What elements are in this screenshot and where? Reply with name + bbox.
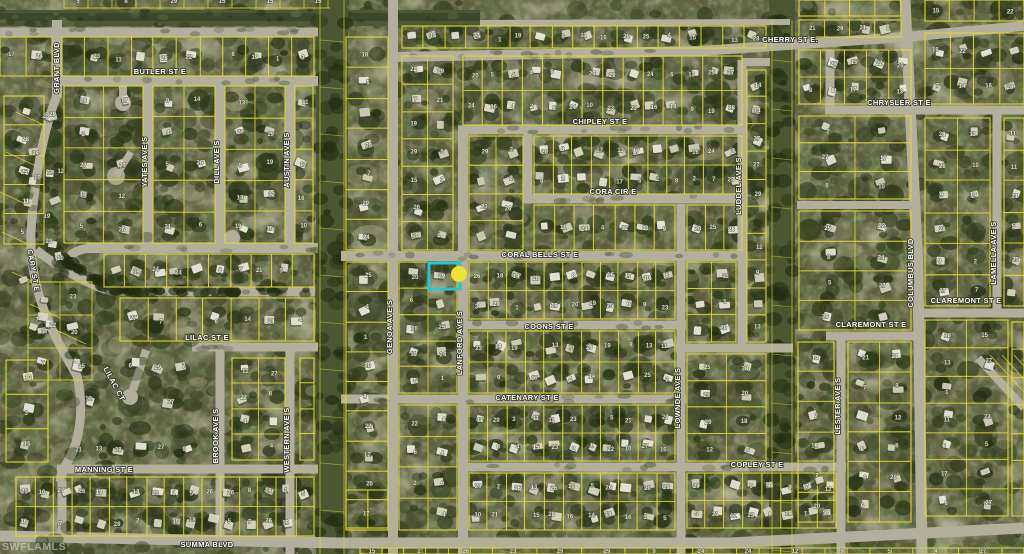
svg-text:28: 28 <box>753 36 760 42</box>
svg-text:LILAC ST E: LILAC ST E <box>185 333 229 342</box>
svg-text:27: 27 <box>119 163 126 169</box>
svg-text:28: 28 <box>728 105 735 111</box>
svg-text:15: 15 <box>533 445 540 451</box>
svg-text:19: 19 <box>708 109 715 115</box>
svg-text:10: 10 <box>475 513 482 519</box>
svg-text:28: 28 <box>939 227 946 233</box>
svg-text:14: 14 <box>812 355 819 361</box>
svg-text:14: 14 <box>670 104 677 110</box>
svg-text:27: 27 <box>130 316 137 322</box>
svg-text:26: 26 <box>206 489 213 495</box>
svg-text:16: 16 <box>430 34 437 40</box>
svg-text:19: 19 <box>589 301 596 307</box>
svg-text:19: 19 <box>251 55 258 61</box>
svg-text:18: 18 <box>362 53 369 59</box>
svg-text:26: 26 <box>463 549 470 554</box>
svg-text:17: 17 <box>363 512 370 518</box>
svg-text:21: 21 <box>862 356 869 362</box>
svg-text:29: 29 <box>557 549 564 554</box>
svg-text:21: 21 <box>491 512 498 518</box>
svg-text:11: 11 <box>661 344 668 350</box>
svg-text:24: 24 <box>569 105 576 111</box>
svg-text:20: 20 <box>541 150 548 156</box>
svg-text:23: 23 <box>607 106 614 112</box>
svg-text:13: 13 <box>754 325 761 331</box>
svg-text:10: 10 <box>300 223 307 229</box>
svg-text:11: 11 <box>410 352 417 358</box>
svg-text:11: 11 <box>1010 132 1017 138</box>
svg-text:CLAREMONT ST E: CLAREMONT ST E <box>836 320 907 329</box>
svg-text:24: 24 <box>698 549 705 554</box>
svg-text:15: 15 <box>267 0 274 5</box>
svg-text:28: 28 <box>114 522 121 528</box>
svg-text:27: 27 <box>158 445 165 451</box>
svg-text:12: 12 <box>268 192 275 198</box>
svg-text:29: 29 <box>171 0 178 5</box>
svg-text:26: 26 <box>413 205 420 211</box>
svg-text:25: 25 <box>606 304 613 310</box>
svg-text:27: 27 <box>271 372 278 378</box>
svg-text:11: 11 <box>560 225 567 231</box>
svg-text:13: 13 <box>731 38 738 44</box>
svg-text:21: 21 <box>712 512 719 518</box>
svg-text:19: 19 <box>267 160 274 166</box>
svg-text:19: 19 <box>511 346 518 352</box>
svg-text:22: 22 <box>410 67 417 73</box>
svg-text:27: 27 <box>168 400 175 406</box>
svg-text:24: 24 <box>32 151 39 157</box>
svg-text:22: 22 <box>411 421 418 427</box>
svg-text:17: 17 <box>8 52 15 58</box>
svg-text:14: 14 <box>244 317 251 323</box>
svg-text:11: 11 <box>548 418 555 424</box>
svg-text:14: 14 <box>755 83 762 89</box>
svg-text:27: 27 <box>662 415 669 421</box>
svg-text:21: 21 <box>164 224 171 230</box>
svg-text:11: 11 <box>642 226 649 232</box>
svg-text:14: 14 <box>754 109 761 115</box>
svg-text:23: 23 <box>481 204 488 210</box>
svg-text:10: 10 <box>568 484 575 490</box>
svg-text:17: 17 <box>880 156 887 162</box>
svg-text:26: 26 <box>550 486 557 492</box>
svg-text:27: 27 <box>80 163 87 169</box>
svg-text:16: 16 <box>932 48 939 54</box>
svg-text:WESTERN AVE S: WESTERN AVE S <box>282 407 291 472</box>
svg-text:13: 13 <box>133 490 140 496</box>
svg-text:23: 23 <box>630 106 637 112</box>
svg-text:19: 19 <box>96 490 103 496</box>
svg-text:17: 17 <box>596 148 603 154</box>
svg-text:24: 24 <box>175 270 182 276</box>
svg-text:12: 12 <box>118 194 125 200</box>
svg-text:22: 22 <box>984 415 991 421</box>
svg-text:26: 26 <box>606 486 613 492</box>
svg-text:14: 14 <box>513 274 520 280</box>
svg-text:19: 19 <box>235 224 242 230</box>
svg-text:13: 13 <box>944 361 951 367</box>
svg-text:24: 24 <box>647 72 654 78</box>
svg-text:11: 11 <box>115 58 122 64</box>
svg-text:19: 19 <box>811 444 818 450</box>
svg-text:14: 14 <box>588 374 595 380</box>
svg-text:29: 29 <box>693 484 700 490</box>
svg-text:13: 13 <box>688 72 695 78</box>
svg-text:24: 24 <box>708 149 715 155</box>
svg-text:12: 12 <box>756 245 763 251</box>
svg-text:19: 19 <box>604 344 611 350</box>
svg-text:26: 26 <box>80 99 87 105</box>
svg-text:11: 11 <box>47 171 54 177</box>
svg-text:25: 25 <box>644 373 651 379</box>
svg-text:20: 20 <box>364 364 371 370</box>
svg-text:15: 15 <box>533 513 540 519</box>
svg-text:COONS ST E: COONS ST E <box>524 322 573 331</box>
svg-text:11: 11 <box>533 416 540 422</box>
svg-text:11: 11 <box>1011 165 1018 171</box>
svg-text:20: 20 <box>475 484 482 490</box>
svg-text:16: 16 <box>651 105 658 111</box>
svg-text:18: 18 <box>189 518 196 524</box>
svg-text:26: 26 <box>118 227 125 233</box>
svg-text:19: 19 <box>133 269 140 275</box>
svg-text:10: 10 <box>878 184 885 190</box>
svg-text:23: 23 <box>70 294 77 300</box>
svg-text:23: 23 <box>510 549 517 554</box>
svg-text:20: 20 <box>813 504 820 510</box>
svg-text:27: 27 <box>237 130 244 136</box>
svg-text:LAMELLA AVE S: LAMELLA AVE S <box>989 221 998 284</box>
svg-text:26: 26 <box>474 274 481 280</box>
svg-text:GENOA AVE S: GENOA AVE S <box>385 300 394 354</box>
svg-text:CHRYSLER ST E: CHRYSLER ST E <box>867 98 931 107</box>
svg-text:17: 17 <box>941 472 948 478</box>
svg-text:26: 26 <box>265 519 272 525</box>
svg-text:12: 12 <box>895 416 902 422</box>
svg-text:LANFORD AVE S: LANFORD AVE S <box>455 311 464 375</box>
svg-text:23: 23 <box>475 346 482 352</box>
svg-text:22: 22 <box>959 49 966 55</box>
svg-text:27: 27 <box>473 34 480 40</box>
svg-text:10: 10 <box>625 446 632 452</box>
svg-text:25: 25 <box>643 34 650 40</box>
svg-text:26: 26 <box>227 491 234 497</box>
svg-text:10: 10 <box>586 103 593 109</box>
svg-text:DILL AVE S: DILL AVE S <box>212 140 221 183</box>
svg-text:SWFLAMLS: SWFLAMLS <box>2 541 66 553</box>
svg-text:19: 19 <box>785 512 792 518</box>
svg-text:17: 17 <box>41 329 48 335</box>
svg-text:12: 12 <box>242 369 249 375</box>
svg-text:COLUMBUS BLVD: COLUMBUS BLVD <box>906 238 915 307</box>
svg-text:10: 10 <box>972 163 979 169</box>
svg-text:12: 12 <box>57 169 64 175</box>
svg-text:27: 27 <box>879 284 886 290</box>
svg-text:20: 20 <box>472 74 479 80</box>
svg-text:13: 13 <box>552 343 559 349</box>
svg-text:10: 10 <box>411 327 418 333</box>
svg-text:16: 16 <box>985 84 992 90</box>
svg-text:LOWNDE AVE S: LOWNDE AVE S <box>673 368 682 429</box>
svg-text:12: 12 <box>621 226 628 232</box>
svg-text:24: 24 <box>152 267 159 273</box>
svg-text:BUTLER ST E: BUTLER ST E <box>134 67 186 76</box>
svg-text:29: 29 <box>705 420 712 426</box>
svg-text:25: 25 <box>704 365 711 371</box>
svg-text:29: 29 <box>437 69 444 75</box>
svg-text:21: 21 <box>809 26 816 32</box>
svg-text:12: 12 <box>300 162 307 168</box>
svg-text:28: 28 <box>742 367 749 373</box>
svg-text:10: 10 <box>39 490 46 496</box>
svg-text:22: 22 <box>1007 9 1014 15</box>
svg-text:21: 21 <box>256 268 263 274</box>
svg-text:17: 17 <box>822 512 829 518</box>
svg-text:15: 15 <box>267 226 274 232</box>
svg-text:26: 26 <box>589 71 596 77</box>
svg-text:24: 24 <box>581 227 588 233</box>
svg-text:15: 15 <box>411 178 418 184</box>
svg-text:24: 24 <box>268 319 275 325</box>
svg-text:16: 16 <box>607 273 614 279</box>
svg-text:25: 25 <box>710 225 717 231</box>
svg-text:16: 16 <box>20 519 27 525</box>
svg-text:20: 20 <box>644 486 651 492</box>
svg-text:17: 17 <box>625 274 632 280</box>
svg-text:LUDDEL AVE S: LUDDEL AVE S <box>734 157 743 215</box>
svg-text:11: 11 <box>730 514 737 520</box>
svg-text:29: 29 <box>837 26 844 32</box>
svg-text:27: 27 <box>939 289 946 295</box>
svg-text:15: 15 <box>369 549 376 554</box>
svg-text:23: 23 <box>703 393 710 399</box>
svg-text:20: 20 <box>742 391 749 397</box>
svg-text:22: 22 <box>878 223 885 229</box>
svg-text:27: 27 <box>985 359 992 365</box>
svg-text:28: 28 <box>728 227 735 233</box>
svg-text:16: 16 <box>490 104 497 110</box>
svg-text:28: 28 <box>897 64 904 70</box>
svg-text:12: 12 <box>364 453 371 459</box>
svg-text:15: 15 <box>933 9 940 15</box>
svg-text:29: 29 <box>411 150 418 156</box>
svg-text:21: 21 <box>437 98 444 104</box>
svg-text:20: 20 <box>71 330 78 336</box>
svg-text:27: 27 <box>822 155 829 161</box>
svg-text:27: 27 <box>753 162 760 168</box>
svg-text:CATENARY ST E: CATENARY ST E <box>495 393 558 402</box>
svg-text:23: 23 <box>46 239 53 245</box>
svg-text:16: 16 <box>514 486 521 492</box>
svg-text:22: 22 <box>186 55 193 61</box>
svg-text:25: 25 <box>21 170 28 176</box>
svg-text:29: 29 <box>609 73 616 79</box>
svg-text:BROOK AVE S: BROOK AVE S <box>211 409 220 464</box>
svg-text:15: 15 <box>172 520 179 526</box>
svg-text:22: 22 <box>365 424 372 430</box>
svg-text:17: 17 <box>121 98 128 104</box>
svg-text:29: 29 <box>663 485 670 491</box>
svg-text:16: 16 <box>692 150 699 156</box>
svg-text:22: 22 <box>240 395 247 401</box>
svg-text:15: 15 <box>219 0 226 5</box>
svg-text:CHERRY ST E.: CHERRY ST E. <box>762 35 818 44</box>
svg-text:29: 29 <box>493 302 500 308</box>
svg-text:17: 17 <box>531 376 538 382</box>
svg-text:19: 19 <box>515 34 522 40</box>
svg-text:25: 25 <box>439 325 446 331</box>
svg-text:SUMMA BLVD: SUMMA BLVD <box>181 540 234 549</box>
svg-text:27: 27 <box>58 488 65 494</box>
svg-text:10: 10 <box>57 256 64 262</box>
svg-text:18: 18 <box>497 274 504 280</box>
svg-text:23: 23 <box>93 54 100 60</box>
svg-text:12: 12 <box>792 549 799 554</box>
svg-text:24: 24 <box>440 353 447 359</box>
svg-text:13: 13 <box>531 485 538 491</box>
svg-text:23: 23 <box>662 306 669 312</box>
svg-text:19: 19 <box>410 122 417 128</box>
svg-text:20: 20 <box>412 275 419 281</box>
svg-text:27: 27 <box>754 136 761 142</box>
svg-text:23: 23 <box>570 417 577 423</box>
svg-text:14: 14 <box>959 84 966 90</box>
svg-text:17: 17 <box>616 180 623 186</box>
svg-text:25: 25 <box>365 273 372 279</box>
svg-text:16: 16 <box>625 515 632 521</box>
svg-text:21: 21 <box>892 354 899 360</box>
svg-text:10: 10 <box>970 193 977 199</box>
svg-text:13: 13 <box>238 101 245 107</box>
svg-text:17: 17 <box>633 149 640 155</box>
svg-text:17: 17 <box>850 88 857 94</box>
svg-text:19: 19 <box>282 520 289 526</box>
svg-text:10: 10 <box>944 334 951 340</box>
svg-text:29: 29 <box>438 274 445 280</box>
svg-text:13: 13 <box>237 195 244 201</box>
svg-text:15: 15 <box>689 35 696 41</box>
svg-text:26: 26 <box>197 161 204 167</box>
svg-text:27: 27 <box>830 62 837 68</box>
svg-text:CLAREMONT ST E: CLAREMONT ST E <box>931 296 1002 305</box>
svg-text:GRANT BLVD: GRANT BLVD <box>52 42 61 94</box>
svg-text:29: 29 <box>755 192 762 198</box>
svg-text:15: 15 <box>24 442 31 448</box>
svg-text:29: 29 <box>604 549 611 554</box>
svg-text:19: 19 <box>412 233 419 239</box>
svg-text:16: 16 <box>567 514 574 520</box>
svg-text:11: 11 <box>302 100 309 106</box>
svg-text:27: 27 <box>727 70 734 76</box>
svg-text:27: 27 <box>642 444 649 450</box>
svg-text:25: 25 <box>1012 258 1019 264</box>
svg-text:12: 12 <box>85 397 92 403</box>
svg-text:11: 11 <box>722 274 729 280</box>
svg-text:28: 28 <box>939 164 946 170</box>
svg-text:14: 14 <box>588 513 595 519</box>
svg-text:27: 27 <box>980 549 987 554</box>
svg-text:26: 26 <box>505 206 512 212</box>
svg-text:20: 20 <box>623 34 630 40</box>
svg-text:LESTER AVE S: LESTER AVE S <box>833 378 842 435</box>
svg-text:29: 29 <box>49 112 56 118</box>
svg-text:29: 29 <box>154 365 161 371</box>
svg-text:24: 24 <box>878 255 885 261</box>
svg-text:19: 19 <box>605 512 612 518</box>
svg-text:24: 24 <box>745 549 752 554</box>
svg-text:23: 23 <box>552 445 559 451</box>
svg-text:12: 12 <box>706 447 713 453</box>
svg-text:21: 21 <box>859 25 866 31</box>
svg-text:28: 28 <box>115 448 122 454</box>
svg-text:18: 18 <box>265 488 272 494</box>
svg-text:13: 13 <box>96 447 103 453</box>
svg-text:20: 20 <box>720 326 727 332</box>
svg-text:22: 22 <box>876 61 883 67</box>
svg-text:YATES AVE S: YATES AVE S <box>140 137 149 188</box>
svg-text:25: 25 <box>708 70 715 76</box>
svg-text:19: 19 <box>495 345 502 351</box>
svg-text:16: 16 <box>80 193 87 199</box>
svg-text:29: 29 <box>482 149 489 155</box>
svg-text:10: 10 <box>34 176 41 182</box>
svg-text:15: 15 <box>981 333 988 339</box>
svg-text:24: 24 <box>36 54 43 60</box>
svg-text:19: 19 <box>44 214 51 220</box>
svg-text:13: 13 <box>646 343 653 349</box>
svg-text:13: 13 <box>896 90 903 96</box>
svg-text:29: 29 <box>267 132 274 138</box>
svg-text:28: 28 <box>532 276 539 282</box>
svg-text:15: 15 <box>78 364 85 370</box>
svg-text:18: 18 <box>741 419 748 425</box>
svg-text:22: 22 <box>607 447 614 453</box>
svg-text:19: 19 <box>551 304 558 310</box>
svg-text:10: 10 <box>643 276 650 282</box>
svg-text:28: 28 <box>22 137 29 143</box>
svg-text:23: 23 <box>748 513 755 519</box>
svg-text:29: 29 <box>493 418 500 424</box>
svg-text:MANNING ST E: MANNING ST E <box>75 465 133 474</box>
svg-text:CHIPLEY ST E: CHIPLEY ST E <box>573 117 628 126</box>
svg-text:25: 25 <box>824 226 831 232</box>
svg-text:11: 11 <box>580 33 587 39</box>
svg-text:11: 11 <box>970 132 977 138</box>
svg-text:28: 28 <box>548 512 555 518</box>
svg-text:11: 11 <box>944 417 951 423</box>
svg-text:21: 21 <box>625 419 632 425</box>
svg-text:10: 10 <box>600 36 607 42</box>
svg-text:CORA CIR E: CORA CIR E <box>590 187 637 196</box>
svg-text:CORAL BELLS ST E: CORAL BELLS ST E <box>502 250 579 259</box>
svg-text:25: 25 <box>21 490 28 496</box>
svg-text:26: 26 <box>586 345 593 351</box>
svg-text:20: 20 <box>152 491 159 497</box>
svg-text:28: 28 <box>161 56 168 62</box>
svg-text:COPLEY ST E: COPLEY ST E <box>731 460 784 469</box>
svg-text:29: 29 <box>362 201 369 207</box>
svg-text:28: 28 <box>939 132 946 138</box>
svg-text:26: 26 <box>79 489 86 495</box>
svg-text:16: 16 <box>660 448 667 454</box>
svg-text:16: 16 <box>298 196 305 202</box>
svg-text:13: 13 <box>617 148 624 154</box>
svg-text:AUSTIN AVE S: AUSTIN AVE S <box>282 132 291 187</box>
svg-text:11: 11 <box>477 418 484 424</box>
svg-text:24: 24 <box>363 235 370 241</box>
svg-text:15: 15 <box>851 60 858 66</box>
svg-text:21: 21 <box>1011 194 1018 200</box>
